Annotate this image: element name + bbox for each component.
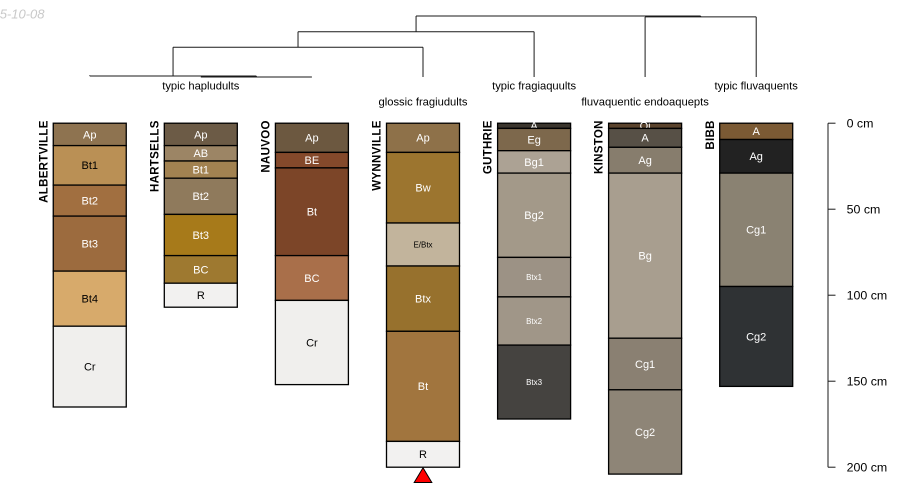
svg-text:Ag: Ag: [638, 155, 651, 167]
svg-text:Bg1: Bg1: [524, 157, 544, 169]
svg-text:Bw: Bw: [415, 183, 430, 195]
svg-text:BC: BC: [304, 273, 319, 285]
svg-text:Bt3: Bt3: [81, 238, 98, 250]
svg-text:Bt2: Bt2: [81, 195, 98, 207]
svg-text:Cg2: Cg2: [635, 427, 655, 439]
svg-text:HARTSELLS: HARTSELLS: [149, 120, 161, 192]
svg-text:100 cm: 100 cm: [847, 289, 888, 303]
svg-text:Eg: Eg: [527, 134, 540, 146]
svg-text:AB: AB: [193, 148, 208, 160]
svg-text:Bg: Bg: [638, 251, 651, 263]
svg-text:Btx3: Btx3: [526, 378, 543, 387]
svg-text:200 cm: 200 cm: [847, 461, 888, 475]
svg-text:Btx: Btx: [415, 294, 431, 306]
svg-text:2015-10-08: 2015-10-08: [0, 7, 45, 22]
svg-text:150 cm: 150 cm: [847, 375, 888, 389]
svg-text:BE: BE: [305, 155, 320, 167]
svg-text:Bg2: Bg2: [524, 210, 544, 222]
svg-text:Ag: Ag: [749, 151, 762, 163]
svg-text:Bt1: Bt1: [81, 160, 98, 172]
svg-text:Btx1: Btx1: [526, 273, 543, 282]
svg-text:Ap: Ap: [83, 129, 96, 141]
svg-text:BIBB: BIBB: [705, 120, 717, 149]
svg-text:glossic fragiudults: glossic fragiudults: [379, 96, 468, 108]
svg-text:Ap: Ap: [305, 133, 318, 145]
svg-text:Bt2: Bt2: [193, 191, 210, 203]
svg-text:R: R: [419, 449, 427, 461]
svg-text:Bt1: Bt1: [193, 164, 210, 176]
svg-text:E/Btx: E/Btx: [413, 240, 432, 249]
svg-text:Cr: Cr: [84, 361, 96, 373]
svg-text:Ap: Ap: [194, 129, 207, 141]
svg-text:Bt3: Bt3: [193, 230, 210, 242]
svg-text:50 cm: 50 cm: [847, 203, 881, 217]
svg-text:typic fluvaquents: typic fluvaquents: [715, 81, 799, 93]
svg-text:WYNNVILLE: WYNNVILLE: [372, 120, 384, 190]
svg-text:typic hapludults: typic hapludults: [162, 81, 240, 93]
svg-text:KINSTON: KINSTON: [594, 120, 606, 174]
svg-text:Bt4: Bt4: [81, 294, 98, 306]
svg-text:fluvaquentic endoaquepts: fluvaquentic endoaquepts: [581, 96, 709, 108]
svg-text:Cg1: Cg1: [746, 225, 766, 237]
svg-text:typic fragiaquults: typic fragiaquults: [492, 81, 576, 93]
svg-text:Bt: Bt: [418, 381, 428, 393]
svg-text:Btx2: Btx2: [526, 317, 543, 326]
svg-text:BC: BC: [193, 264, 208, 276]
svg-text:0 cm: 0 cm: [847, 117, 874, 131]
svg-text:Bt: Bt: [307, 207, 317, 219]
svg-text:ALBERTVILLE: ALBERTVILLE: [38, 120, 50, 203]
svg-text:Ap: Ap: [416, 133, 429, 145]
svg-text:R: R: [197, 290, 205, 302]
svg-text:Cr: Cr: [306, 337, 318, 349]
svg-text:GUTHRIE: GUTHRIE: [483, 120, 495, 174]
svg-text:A: A: [641, 133, 649, 145]
svg-text:NAUVOO: NAUVOO: [260, 120, 272, 172]
svg-text:Cg1: Cg1: [635, 359, 655, 371]
svg-text:Cg2: Cg2: [746, 331, 766, 343]
svg-text:A: A: [753, 126, 761, 138]
